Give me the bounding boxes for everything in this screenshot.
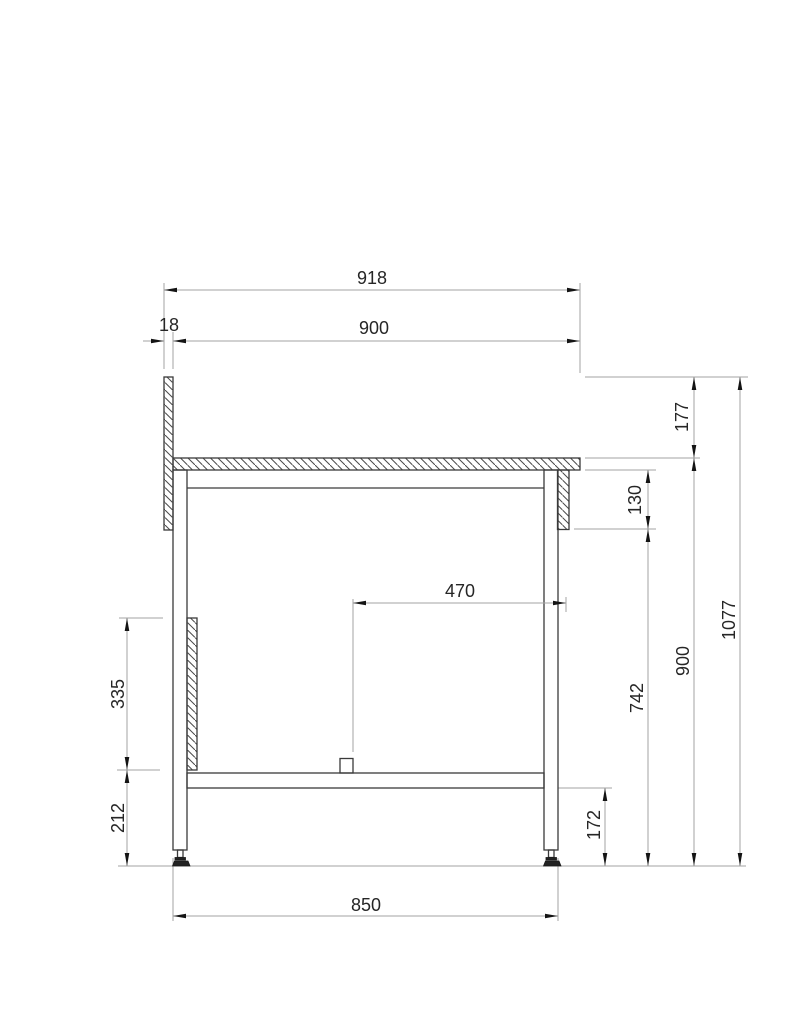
arrowhead bbox=[151, 339, 164, 344]
left-foot-plate bbox=[175, 858, 186, 861]
arrowhead-up bbox=[646, 470, 651, 483]
arrowhead-right bbox=[553, 601, 566, 606]
dimension-177-900-vertical: 177 900 bbox=[672, 377, 696, 866]
dim-label-panel-to-floor: 212 bbox=[108, 803, 128, 833]
left-foot bbox=[173, 850, 191, 866]
dimension-918: 918 bbox=[164, 268, 580, 292]
dimension-470: 470 bbox=[353, 581, 566, 605]
back-upstand-panel-section bbox=[164, 377, 173, 530]
left-leg bbox=[173, 470, 187, 850]
dim-label-upstand-thickness: 18 bbox=[159, 315, 179, 335]
lower-shelf bbox=[187, 773, 544, 788]
arrowhead-down bbox=[738, 853, 743, 866]
dim-label-foot-spacing: 850 bbox=[351, 895, 381, 915]
arrowhead-up bbox=[125, 770, 130, 783]
arrowhead-down bbox=[125, 757, 130, 770]
left-foot-pad bbox=[173, 861, 191, 866]
arrowhead-up bbox=[738, 377, 743, 390]
arrowhead-up bbox=[125, 618, 130, 631]
dimension-172: 172 bbox=[584, 788, 607, 866]
arrowhead-down bbox=[125, 853, 130, 866]
dimension-900-top: 900 bbox=[173, 318, 580, 343]
arrowhead-left bbox=[173, 914, 186, 919]
left-foot-stem bbox=[178, 850, 184, 858]
right-foot-pad bbox=[544, 861, 562, 866]
dim-label-apron-height: 130 bbox=[625, 485, 645, 515]
arrowhead-down bbox=[692, 445, 697, 458]
front-rail-section bbox=[558, 470, 570, 530]
arrowhead-left bbox=[353, 601, 366, 606]
dim-label-block-to-rail: 470 bbox=[445, 581, 475, 601]
dimension-1077: 1077 bbox=[719, 377, 742, 866]
arrowhead-down bbox=[603, 853, 608, 866]
dimension-850: 850 bbox=[173, 895, 558, 918]
arrowhead-up bbox=[646, 529, 651, 542]
dim-label-overall-depth: 918 bbox=[357, 268, 387, 288]
dimension-335-212-vertical: 335 212 bbox=[108, 618, 129, 866]
arrowhead-left bbox=[164, 288, 177, 293]
arrowhead-up bbox=[603, 788, 608, 801]
dimension-18: 18 bbox=[143, 315, 179, 343]
right-foot-stem bbox=[549, 850, 555, 858]
dim-label-worktop-height: 900 bbox=[673, 646, 693, 676]
arrowhead-right bbox=[567, 288, 580, 293]
worktop-slab-section bbox=[173, 458, 580, 470]
extension-lines bbox=[117, 283, 748, 921]
arrowhead-down bbox=[646, 516, 651, 529]
dim-label-under-top-clearance: 742 bbox=[627, 683, 647, 713]
arrowhead-left bbox=[173, 339, 186, 344]
arrowhead-down bbox=[692, 853, 697, 866]
arrowhead-up bbox=[692, 458, 697, 471]
dim-label-side-panel-height: 335 bbox=[108, 679, 128, 709]
technical-drawing: 918 900 18 470 850 177 900 bbox=[0, 0, 802, 1024]
arrowhead-up bbox=[692, 377, 697, 390]
structure bbox=[164, 377, 580, 866]
dim-label-upstand-above-top: 177 bbox=[672, 402, 692, 432]
dim-label-overall-height: 1077 bbox=[719, 600, 739, 640]
side-panel-section bbox=[187, 618, 197, 770]
stop-block bbox=[340, 759, 353, 774]
arrowhead-right bbox=[545, 914, 558, 919]
dim-label-shelf-to-floor: 172 bbox=[584, 810, 604, 840]
arrowhead-right bbox=[567, 339, 580, 344]
dim-label-worktop-depth: 900 bbox=[359, 318, 389, 338]
right-foot-plate bbox=[546, 858, 557, 861]
right-leg bbox=[544, 470, 558, 850]
drawing-canvas: 918 900 18 470 850 177 900 bbox=[0, 0, 802, 1024]
arrowhead-down bbox=[646, 853, 651, 866]
